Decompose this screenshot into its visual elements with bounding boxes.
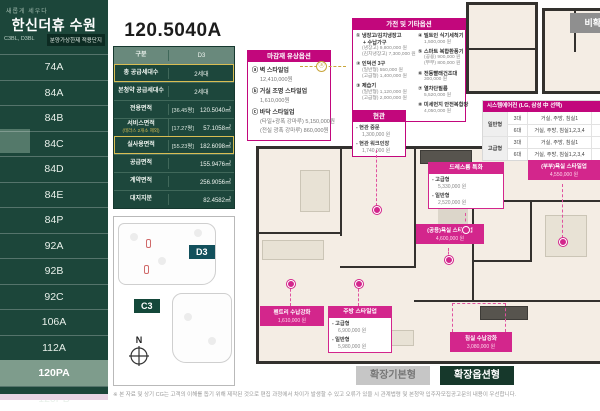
annotation-line (452, 303, 453, 332)
option-price: 12,410,000원 (252, 75, 326, 83)
plan-point-marker (287, 280, 295, 288)
entrance-options-title: 현관 (353, 111, 405, 122)
compass-north-label: N (124, 335, 154, 345)
unit-spec-table: 구분 D3 총 공급세대수 2세대 본청약 공급세대수 2세대 전용면적 [36… (113, 46, 235, 209)
option-price: 1,300,000 원 (356, 131, 402, 138)
sidebar-item-84d[interactable]: 84D (0, 156, 108, 182)
row-label: 공급면적 (114, 158, 169, 169)
sidebar: 새롭게 세우다 한신더휴 수원 C3BL, D3BL 분양가상한제 적용단지 7… (0, 0, 108, 400)
appliance-right-column: ④ 빌트인 식기세척기 1,500,000 원 ⑤ 스마트 복합환풍기 (공용)… (415, 30, 471, 121)
tree-decoration (158, 257, 166, 265)
appliance-options-box: 가전 및 기타옵션 ① 냉장고/김치냉장고 + 수납가구 (냉장고) 9,800… (352, 18, 466, 122)
tree-decoration (130, 233, 138, 241)
sidebar-item-84p[interactable]: 84P (0, 207, 108, 233)
table-row: 전용면적 [36.45평] 120.5040㎡ (114, 100, 234, 118)
wall (414, 300, 600, 302)
finish-options-title: 마감재 유상옵션 (248, 51, 330, 62)
sidebar-item-74a[interactable]: 74A (0, 54, 108, 80)
row-value: 120.5040㎡ (200, 105, 231, 114)
bath-master-tag: (부부)욕실 스타일업 4,550,000 원 (528, 160, 600, 180)
unit-type-nav: 74A 84A 84B 84C 84D 84E 84P 92A 92B 92C … (0, 54, 108, 411)
expand-basic-button[interactable]: 확장기본형 (356, 366, 430, 385)
row-value: 57.1058㎡ (203, 123, 231, 132)
kitchen-option-title: 주방 스타일업 (329, 307, 391, 318)
page-title: 120.5040A (112, 20, 234, 42)
option-price: 1,610,000원 (252, 96, 326, 104)
block-label-d3: D3 (189, 245, 215, 259)
wall (472, 260, 532, 262)
aircon-price: 1 (591, 148, 600, 160)
plan-point-marker (559, 238, 567, 246)
table-furniture (300, 170, 330, 212)
option-marker-c: ⓒ (252, 110, 258, 116)
aircon-rooms: 거실, 주방, 침실1,2,3,4 (527, 148, 591, 160)
system-aircon-table: 시스템에어컨 (LG, 삼성 中 선택) 일반형 3대 거실, 주방, 침실1 … (482, 100, 600, 161)
option-price: (타일+광폭 강마루) 5,150,000원 (252, 117, 326, 125)
table-row: 대지지분 82.4582㎡ (114, 190, 234, 208)
block-label-c3: C3 (134, 299, 160, 313)
annotation-line (376, 150, 377, 206)
tree-decoration (194, 229, 202, 237)
row-value: 155.9476㎡ (169, 159, 234, 168)
pantry-tag: 펜트리 수납강화 1,610,000 원 (260, 306, 324, 326)
annotation-line (452, 303, 506, 304)
sidebar-item-84a[interactable]: 84A (0, 80, 108, 106)
disclaimer-text: ※ 본 자료 및 상기 CG는 고객의 이해를 돕기 위해 제작된 것으로 편집… (113, 390, 600, 398)
row-value: 2세대 (169, 87, 234, 96)
aircon-group: 고급형 (483, 136, 507, 160)
option-name: ⓒ 바닥 스타일업 (252, 107, 326, 116)
wall (340, 146, 342, 236)
option-marker-a: ⓐ (252, 68, 258, 74)
row-value: 256.9056㎡ (169, 177, 234, 186)
sidebar-item-84e[interactable]: 84E (0, 182, 108, 208)
sofa-furniture (262, 240, 324, 260)
pyeong-value: [36.45평] (172, 106, 194, 114)
wall (472, 200, 474, 300)
aircon-count: 6대 (507, 148, 527, 160)
row-label: 실사용면적 (114, 140, 169, 151)
row-value: 82.4582㎡ (169, 195, 234, 204)
entrance-options-box: 현관 - 현관 중문 1,300,000 원 - 현관 워크인장 1,740,0… (352, 110, 406, 157)
row-label: 전용면적 (114, 104, 169, 115)
sidebar-item-92a[interactable]: 92A (0, 233, 108, 259)
table-row: 총 공급세대수 2세대 (114, 64, 234, 82)
appliance-left-column: ① 냉장고/김치냉장고 + 수납가구 (냉장고) 9,800,000 원 (김치… (353, 30, 415, 121)
kitchen-option-box: 주방 스타일업 - 고급형 6,900,000 원 - 일반형 5,980,00… (328, 306, 392, 353)
tree-decoration (208, 337, 216, 345)
table-row: 계약면적 256.9056㎡ (114, 172, 234, 190)
aircon-rooms: 거실, 주방, 침실1,2,3,4 (527, 124, 591, 136)
wall (256, 232, 342, 234)
brand-title: 한신더휴 수원 (0, 15, 108, 35)
aircon-group: 일반형 (483, 112, 507, 136)
table-row: 실사용면적 [55.23평] 182.6098㎡ (114, 136, 234, 154)
bath-common-tag: (공용)욕실 스타일업 4,600,000 원 (416, 224, 484, 244)
row-label: 계약면적 (114, 176, 169, 187)
aircon-table-title: 시스템에어컨 (LG, 삼성 中 선택) (483, 101, 600, 112)
sidebar-bottom-strip (0, 394, 108, 400)
table-row: 본청약 공급세대수 2세대 (114, 82, 234, 100)
table-row: 구분 D3 (114, 47, 234, 64)
aircon-rooms: 거실, 주방, 침실1 (527, 136, 591, 148)
unit-location-mark (146, 239, 151, 248)
row-value: 2세대 (169, 69, 234, 78)
site-plan-map: D3 C3 N (113, 216, 235, 386)
row-label: 구분 (114, 50, 169, 61)
aircon-price: 9 (591, 136, 600, 148)
sidebar-item-106a[interactable]: 106A (0, 309, 108, 335)
plan-point-marker (355, 280, 363, 288)
compass-icon: N (124, 335, 154, 372)
sidebar-item-120pa[interactable]: 120PA (0, 360, 108, 386)
sidebar-item-112a[interactable]: 112A (0, 335, 108, 361)
row-label: 총 공급세대수 (114, 68, 169, 79)
non-expand-type-button[interactable]: 비확장형 (570, 13, 600, 33)
plan-point-marker (462, 226, 470, 234)
option-price: (전실 광폭 강마루) 860,000원 (252, 126, 326, 134)
sidebar-item-92b[interactable]: 92B (0, 258, 108, 284)
table-row: 공급면적 155.9476㎡ (114, 154, 234, 172)
aircon-price: 8 (591, 112, 600, 124)
row-value: 182.6098㎡ (200, 141, 231, 150)
bedroom-tag: 침실 수납강화 3,080,000 원 (450, 332, 512, 352)
option-marker-b: ⓑ (252, 89, 258, 95)
wall (340, 266, 416, 268)
dressroom-option-box: 드레스룸 특화 - 고급형 5,330,000 원 - 일반형 2,520,00… (428, 162, 504, 209)
unit-location-mark (144, 265, 149, 274)
price-cap-badge: 분양가상한제 적용단지 (47, 34, 105, 46)
brand-tagline: 새롭게 세우다 (6, 6, 48, 15)
sidebar-item-92c[interactable]: 92C (0, 284, 108, 310)
annotation-line (562, 184, 563, 238)
wall-styleup-marker-icon: ⓐ (316, 61, 327, 72)
plan-point-marker (373, 206, 381, 214)
row-label: 서비스면적 (테라스 2개소 제외) (114, 119, 169, 136)
pyeong-value: [55.23평] (172, 142, 194, 150)
dressroom-option-title: 드레스룸 특화 (429, 163, 503, 174)
table-row: 서비스면적 (테라스 2개소 제외) [17.27평] 57.1058㎡ (114, 118, 234, 136)
plan-point-marker (445, 256, 453, 264)
wardrobe-furniture (480, 306, 528, 320)
aircon-count: 3대 (507, 136, 527, 148)
option-name: - 현관 중문 (356, 124, 402, 131)
aircon-count: 3대 (507, 112, 527, 124)
row-value: D3 (169, 53, 234, 59)
option-price: 1,740,000 원 (356, 147, 402, 154)
wall (414, 146, 416, 266)
tree-decoration (184, 313, 192, 321)
aircon-price: 9 (591, 124, 600, 136)
aircon-count: 6대 (507, 124, 527, 136)
building-footprint-c3 (172, 293, 232, 363)
option-name: ⓑ 거실 조명 스타일업 (252, 86, 326, 95)
sidebar-item-84c[interactable]: 84C (0, 131, 108, 157)
compass-rose-icon (128, 345, 150, 367)
appliance-options-title: 가전 및 기타옵션 (353, 19, 465, 30)
block-names: C3BL, D3BL (4, 36, 35, 42)
sidebar-item-84b[interactable]: 84B (0, 105, 108, 131)
row-label: 본청약 공급세대수 (114, 86, 169, 97)
annotation-line (505, 303, 506, 332)
row-label: 대지지분 (114, 194, 169, 205)
expand-option-button[interactable]: 확장옵션형 (440, 366, 514, 385)
row-sublabel: (테라스 2개소 제외) (116, 128, 166, 133)
wall (530, 200, 532, 260)
option-name: - 현관 워크인장 (356, 140, 402, 147)
wall (468, 48, 536, 50)
bed-furniture (545, 215, 587, 257)
aircon-rooms: 거실, 주방, 침실1 (527, 112, 591, 124)
pyeong-value: [17.27평] (172, 124, 194, 132)
